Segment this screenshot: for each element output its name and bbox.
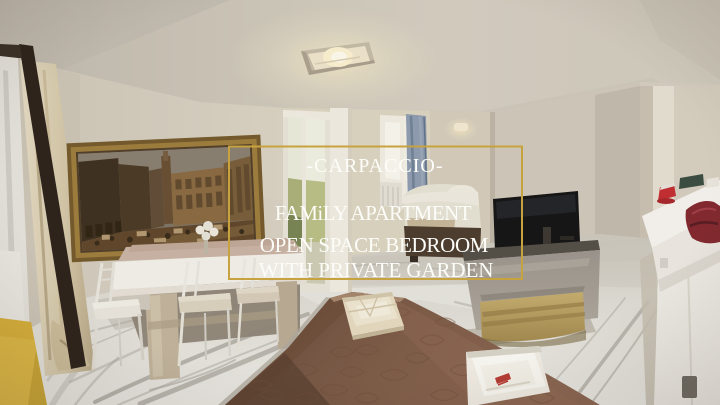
- svg-text:OPEN SPACE BEDROOM: OPEN SPACE BEDROOM: [260, 233, 489, 257]
- svg-text:-CARPACCIO-: -CARPACCIO-: [307, 155, 444, 177]
- svg-text:FAMiLY APARTMENT: FAMiLY APARTMENT: [275, 201, 472, 225]
- svg-text:WITH PRIVATE GARDEN: WITH PRIVATE GARDEN: [259, 258, 494, 282]
